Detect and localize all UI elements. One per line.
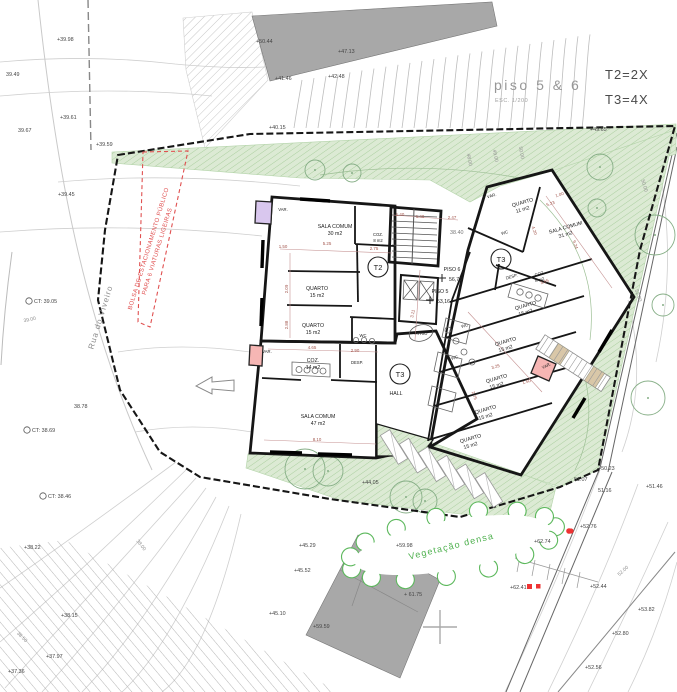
atrio-label: ÁTRIO xyxy=(415,331,429,336)
terrace-line xyxy=(366,69,374,128)
terrace-line xyxy=(582,34,590,128)
elevation-marker: +38.15 xyxy=(61,613,78,619)
dimension-label: 2.88 xyxy=(284,320,289,329)
terrace-line xyxy=(330,74,338,128)
elevation-marker: 38.78 xyxy=(74,404,88,410)
hall-label: HALL xyxy=(390,391,403,397)
street-label: Rua do Viveiro xyxy=(87,284,115,350)
terrace-line xyxy=(486,50,494,128)
badge-t2: T2 xyxy=(374,263,383,272)
piso5-level: 53,16 xyxy=(437,299,450,305)
piso6-label: PISO 6 xyxy=(444,267,461,273)
street-label-group: Rua do Viveiro xyxy=(87,284,115,350)
terrace-line xyxy=(378,67,386,128)
t3a-coz-label: COZ. xyxy=(307,358,319,364)
elevation-marker: 51.16 xyxy=(598,488,612,494)
terrace-line xyxy=(306,78,314,128)
tree-center-dot xyxy=(647,397,649,399)
survey-point-icon xyxy=(40,493,46,499)
dimension-label: 3.11 xyxy=(409,309,416,319)
dimension-label: 1.50 xyxy=(279,244,288,249)
dimension-label: 1.40 xyxy=(396,212,405,217)
piso6-level: 56,75 xyxy=(449,277,462,283)
dimension-label: 3.25 xyxy=(491,363,501,370)
scale-label: ESC. 1/200 xyxy=(495,98,528,104)
badge-t3-bottom: T3 xyxy=(396,370,405,379)
dimension-label: 5.23 xyxy=(546,200,556,208)
elevation-marker: +40.15 xyxy=(269,125,286,131)
contour-label: 52.00 xyxy=(617,565,630,578)
dimension-label: 1.00 xyxy=(555,191,565,199)
street-level-label: 38.40 xyxy=(450,230,464,236)
parking-note-line1: BOLSA DE ESTACIONAMENTO PÚBLICO xyxy=(127,187,171,311)
t3a-sala-area: 47 m2 xyxy=(311,421,326,427)
terrain-hatches xyxy=(0,12,335,692)
survey-cross-icon xyxy=(423,610,457,644)
survey-point-icon xyxy=(26,298,32,304)
elevation-marker: 39.49 xyxy=(6,72,20,78)
t3b-desp-label: DESP. xyxy=(505,272,518,280)
piso5-label: PISO 5 xyxy=(432,289,449,295)
tree-center-dot xyxy=(662,304,664,306)
elevation-marker: +59.59 xyxy=(313,624,330,630)
dimension-label: 4.65 xyxy=(308,345,317,350)
t2-count-label: T2=2X xyxy=(605,67,649,82)
parking-reserve: BOLSA DE ESTACIONAMENTO PÚBLICO PARA 6 V… xyxy=(127,151,188,327)
elevation-marker: +44,05 xyxy=(362,480,379,486)
elevation-marker: +51.46 xyxy=(646,484,663,490)
t2-quarto2-area: 15 m2 xyxy=(306,330,321,336)
t2-quarto1-label: QUARTO xyxy=(306,286,328,292)
elevation-marker: CT: 38.46 xyxy=(48,494,71,500)
elevation-marker: +52.76 xyxy=(580,524,597,530)
t2-quarto2-label: QUARTO xyxy=(302,323,324,329)
contour-label: 38.00 xyxy=(135,539,148,553)
t3b-var-label: VAR. xyxy=(486,192,496,199)
contour-label: 39.00 xyxy=(23,316,37,325)
elevation-marker: +42.48 xyxy=(328,74,345,80)
terrace-line xyxy=(414,61,422,128)
terrace-line xyxy=(462,53,470,128)
terrace-line xyxy=(474,52,482,129)
elevation-marker: +39.98 xyxy=(57,37,74,43)
dimension-label: 2.90 xyxy=(351,348,360,353)
t3-count-label: T3=4X xyxy=(605,92,649,107)
red-survey-dot xyxy=(568,528,573,533)
elevation-marker: +37.97 xyxy=(46,654,63,660)
elevation-marker: +45.10 xyxy=(269,611,286,617)
t3a-sala-label: SALA COMUM xyxy=(301,414,336,420)
terrace-line xyxy=(318,76,326,128)
elevation-marker: +37.36 xyxy=(8,669,25,675)
dimension-label: 8.10 xyxy=(313,437,322,442)
tree-center-dot xyxy=(424,500,426,502)
unit-badges: T2 T3 T3 xyxy=(368,249,511,384)
elevation-marker: +39.61 xyxy=(60,115,77,121)
terrace-line xyxy=(402,63,410,128)
survey-point-icon xyxy=(24,427,30,433)
wing-wc2-label: WC xyxy=(451,354,459,361)
elevation-marker: +52.56 xyxy=(585,665,602,671)
terrace-line xyxy=(438,57,446,128)
elevation-marker: +39.59 xyxy=(96,142,113,148)
dimension-label: 2.47 xyxy=(448,215,457,220)
t3a-var-label: VAR. xyxy=(262,349,271,354)
elevation-marker: CT: 39.05 xyxy=(34,299,57,305)
elevation-marker: 39.67 xyxy=(18,128,32,134)
t2-wc-label: WC xyxy=(360,333,367,338)
t3b-wc-label: WC xyxy=(501,229,509,236)
dimension-label: 5.25 xyxy=(323,241,332,246)
elevation-marker: +45.52 xyxy=(294,568,311,574)
elevation-marker: +53.82 xyxy=(638,607,655,613)
upper-building xyxy=(252,2,497,81)
elevation-marker: +38.22 xyxy=(24,545,41,551)
wing-wc1-label: WC xyxy=(461,322,469,329)
t2-coz-label: COZ. xyxy=(373,232,383,237)
elevation-marker: +52.44 xyxy=(590,584,607,590)
dimension-label: 1.40 xyxy=(416,214,425,219)
tree-center-dot xyxy=(327,470,329,472)
elevation-marker: +50.23 xyxy=(598,466,615,472)
floor-title: piso 5 & 6 xyxy=(494,77,581,93)
tree-center-dot xyxy=(654,234,656,236)
kitchen-counters xyxy=(292,283,548,377)
elevation-marker: +47.13 xyxy=(338,49,355,55)
tree-center-dot xyxy=(351,172,353,174)
site-plan-drawing: BOLSA DE ESTACIONAMENTO PÚBLICO PARA 6 V… xyxy=(0,0,677,692)
t3a-desp-label: DESP. xyxy=(351,360,363,365)
terrace-line xyxy=(342,72,350,128)
elevation-marker: +45.29 xyxy=(299,543,316,549)
elevation-marker: +50.44 xyxy=(256,39,273,45)
elevation-marker: + 61.75 xyxy=(404,592,422,598)
elevation-marker: +62.41 xyxy=(510,585,527,591)
elevation-marker: +59.98 xyxy=(396,543,413,549)
elevation-marker: +49.65 xyxy=(590,127,607,133)
t3-lower-room-labels: VAR. COZ. 14 m2 DESP. SALA COMUM 47 m2 xyxy=(262,349,363,427)
dimension-label: 2.75 xyxy=(370,246,379,251)
t2-var-label: VAR. xyxy=(278,207,287,212)
elevation-marker: +52.80 xyxy=(612,631,629,637)
elevation-marker: +39.45 xyxy=(58,192,75,198)
site-plan-svg: BOLSA DE ESTACIONAMENTO PÚBLICO PARA 6 V… xyxy=(0,0,677,692)
badge-t3-top: T3 xyxy=(497,255,506,264)
tree-center-dot xyxy=(599,166,601,168)
t2-sala-area: 30 m2 xyxy=(328,231,343,237)
benchmark-icon xyxy=(426,296,434,304)
dimension-label: 4.20 xyxy=(531,226,539,236)
terrace-line xyxy=(450,55,458,128)
tree-center-dot xyxy=(314,169,316,171)
elevation-marker: +62.74 xyxy=(534,539,551,545)
elevation-marker: 51.07 xyxy=(574,477,588,483)
entrance-arrow-icon xyxy=(196,377,234,394)
terrace-line xyxy=(426,59,434,128)
tree-center-dot xyxy=(596,207,598,209)
red-survey-square xyxy=(527,584,532,589)
title-block: piso 5 & 6 ESC. 1/200 T2=2X T3=4X xyxy=(494,67,649,107)
t2-coz-area: 8 m2 xyxy=(373,238,383,243)
red-survey-square xyxy=(536,584,541,589)
tree-center-dot xyxy=(405,496,407,498)
elevation-marker: +41.46 xyxy=(275,76,292,82)
t2-quarto1-area: 15 m2 xyxy=(310,293,325,299)
t3a-coz-area: 14 m2 xyxy=(306,365,321,371)
dimension-label: 2.09 xyxy=(284,284,289,293)
terrace-line xyxy=(294,80,302,128)
t2-sala-label: SALA COMUM xyxy=(318,224,353,230)
elevation-marker: CT: 38.69 xyxy=(32,428,55,434)
terrace-line xyxy=(354,71,362,129)
tree-center-dot xyxy=(304,468,306,470)
terrace-line xyxy=(390,65,398,128)
benchmark-icon xyxy=(438,274,446,282)
